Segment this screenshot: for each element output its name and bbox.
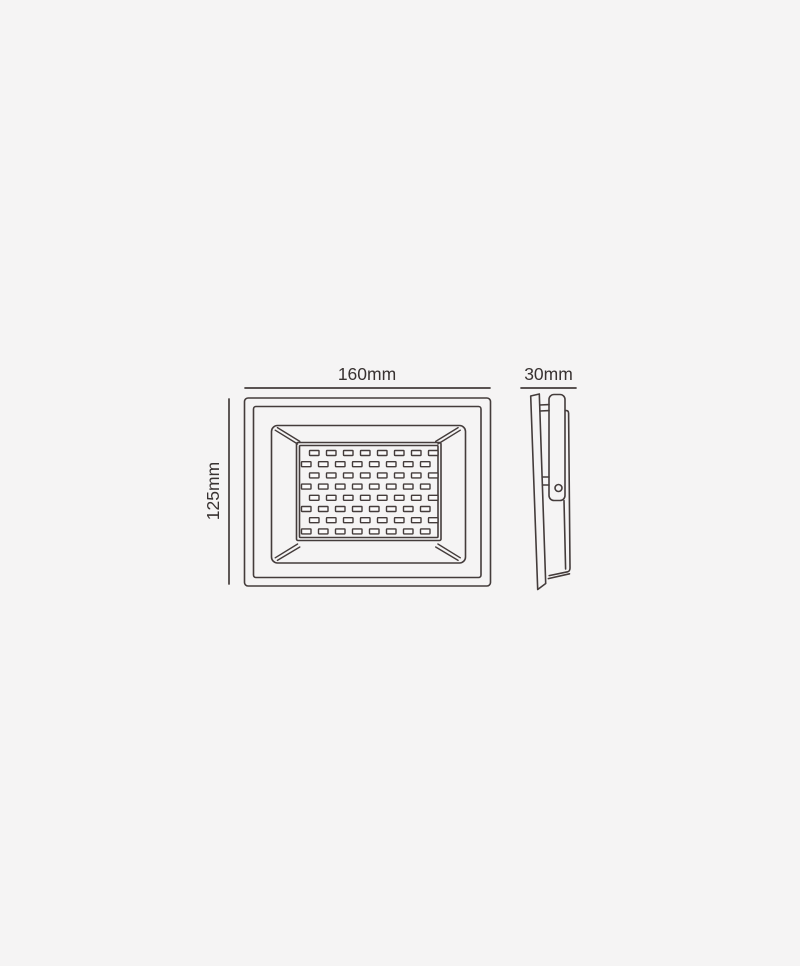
led-chip — [395, 473, 405, 478]
led-chip — [395, 495, 405, 500]
side-lens-strip — [531, 394, 546, 590]
led-chip — [412, 518, 422, 523]
side-pivot-hole — [555, 485, 562, 492]
led-chip — [429, 473, 439, 478]
front-view — [245, 398, 491, 586]
led-chip — [361, 451, 371, 456]
led-chip — [327, 473, 337, 478]
led-chip — [404, 529, 414, 534]
led-chip — [302, 507, 312, 512]
led-chip — [336, 529, 346, 534]
led-chip — [387, 507, 397, 512]
led-chip — [370, 507, 380, 512]
drawing-lines — [229, 388, 576, 590]
led-chip — [336, 462, 346, 467]
led-chip — [387, 529, 397, 534]
led-chip — [327, 451, 337, 456]
led-chip — [310, 518, 320, 523]
led-chip — [421, 462, 431, 467]
front-inner-frame — [254, 407, 482, 578]
led-chip — [361, 495, 371, 500]
led-chip — [378, 451, 388, 456]
led-chip — [370, 484, 380, 489]
led-chip — [395, 518, 405, 523]
floodlight-dimension-diagram: 160mm 30mm 125mm — [0, 0, 800, 966]
led-chip — [327, 495, 337, 500]
led-chip — [353, 507, 363, 512]
height-dimension-label: 125mm — [203, 462, 223, 520]
led-chip — [404, 507, 414, 512]
led-window-inner — [300, 446, 439, 538]
led-chip — [336, 507, 346, 512]
led-chip — [412, 473, 422, 478]
led-chip — [421, 529, 431, 534]
led-chip — [429, 451, 439, 456]
led-chip — [319, 529, 329, 534]
led-chip — [344, 495, 354, 500]
led-chip — [336, 484, 346, 489]
led-chip — [319, 507, 329, 512]
led-chip — [327, 518, 337, 523]
led-chip — [404, 462, 414, 467]
led-chip — [421, 507, 431, 512]
led-grid — [302, 451, 439, 534]
led-chip — [429, 518, 439, 523]
led-chip — [302, 462, 312, 467]
side-housing-back-edge — [549, 411, 570, 576]
side-view — [531, 394, 570, 590]
led-chip — [370, 529, 380, 534]
led-chip — [429, 495, 439, 500]
led-chip — [344, 451, 354, 456]
led-chip — [310, 495, 320, 500]
width-dimension-label: 160mm — [338, 364, 396, 384]
depth-dimension-label: 30mm — [524, 364, 573, 384]
led-chip — [378, 473, 388, 478]
led-chip — [361, 473, 371, 478]
led-chip — [353, 529, 363, 534]
side-body-inner-edge — [564, 501, 566, 570]
led-chip — [412, 495, 422, 500]
led-chip — [319, 462, 329, 467]
led-chip — [412, 451, 422, 456]
led-chip — [404, 484, 414, 489]
led-chip — [378, 495, 388, 500]
led-chip — [395, 451, 405, 456]
led-chip — [361, 518, 371, 523]
led-chip — [344, 518, 354, 523]
led-chip — [353, 462, 363, 467]
led-chip — [421, 484, 431, 489]
led-window-outer — [297, 443, 442, 541]
led-chip — [344, 473, 354, 478]
technical-drawing-page: 160mm 30mm 125mm — [0, 0, 800, 966]
led-chip — [302, 484, 312, 489]
led-chip — [370, 462, 380, 467]
led-chip — [310, 451, 320, 456]
led-chip — [310, 473, 320, 478]
led-chip — [378, 518, 388, 523]
led-chip — [302, 529, 312, 534]
led-chip — [353, 484, 363, 489]
led-chip — [387, 484, 397, 489]
led-chip — [387, 462, 397, 467]
led-chip — [319, 484, 329, 489]
